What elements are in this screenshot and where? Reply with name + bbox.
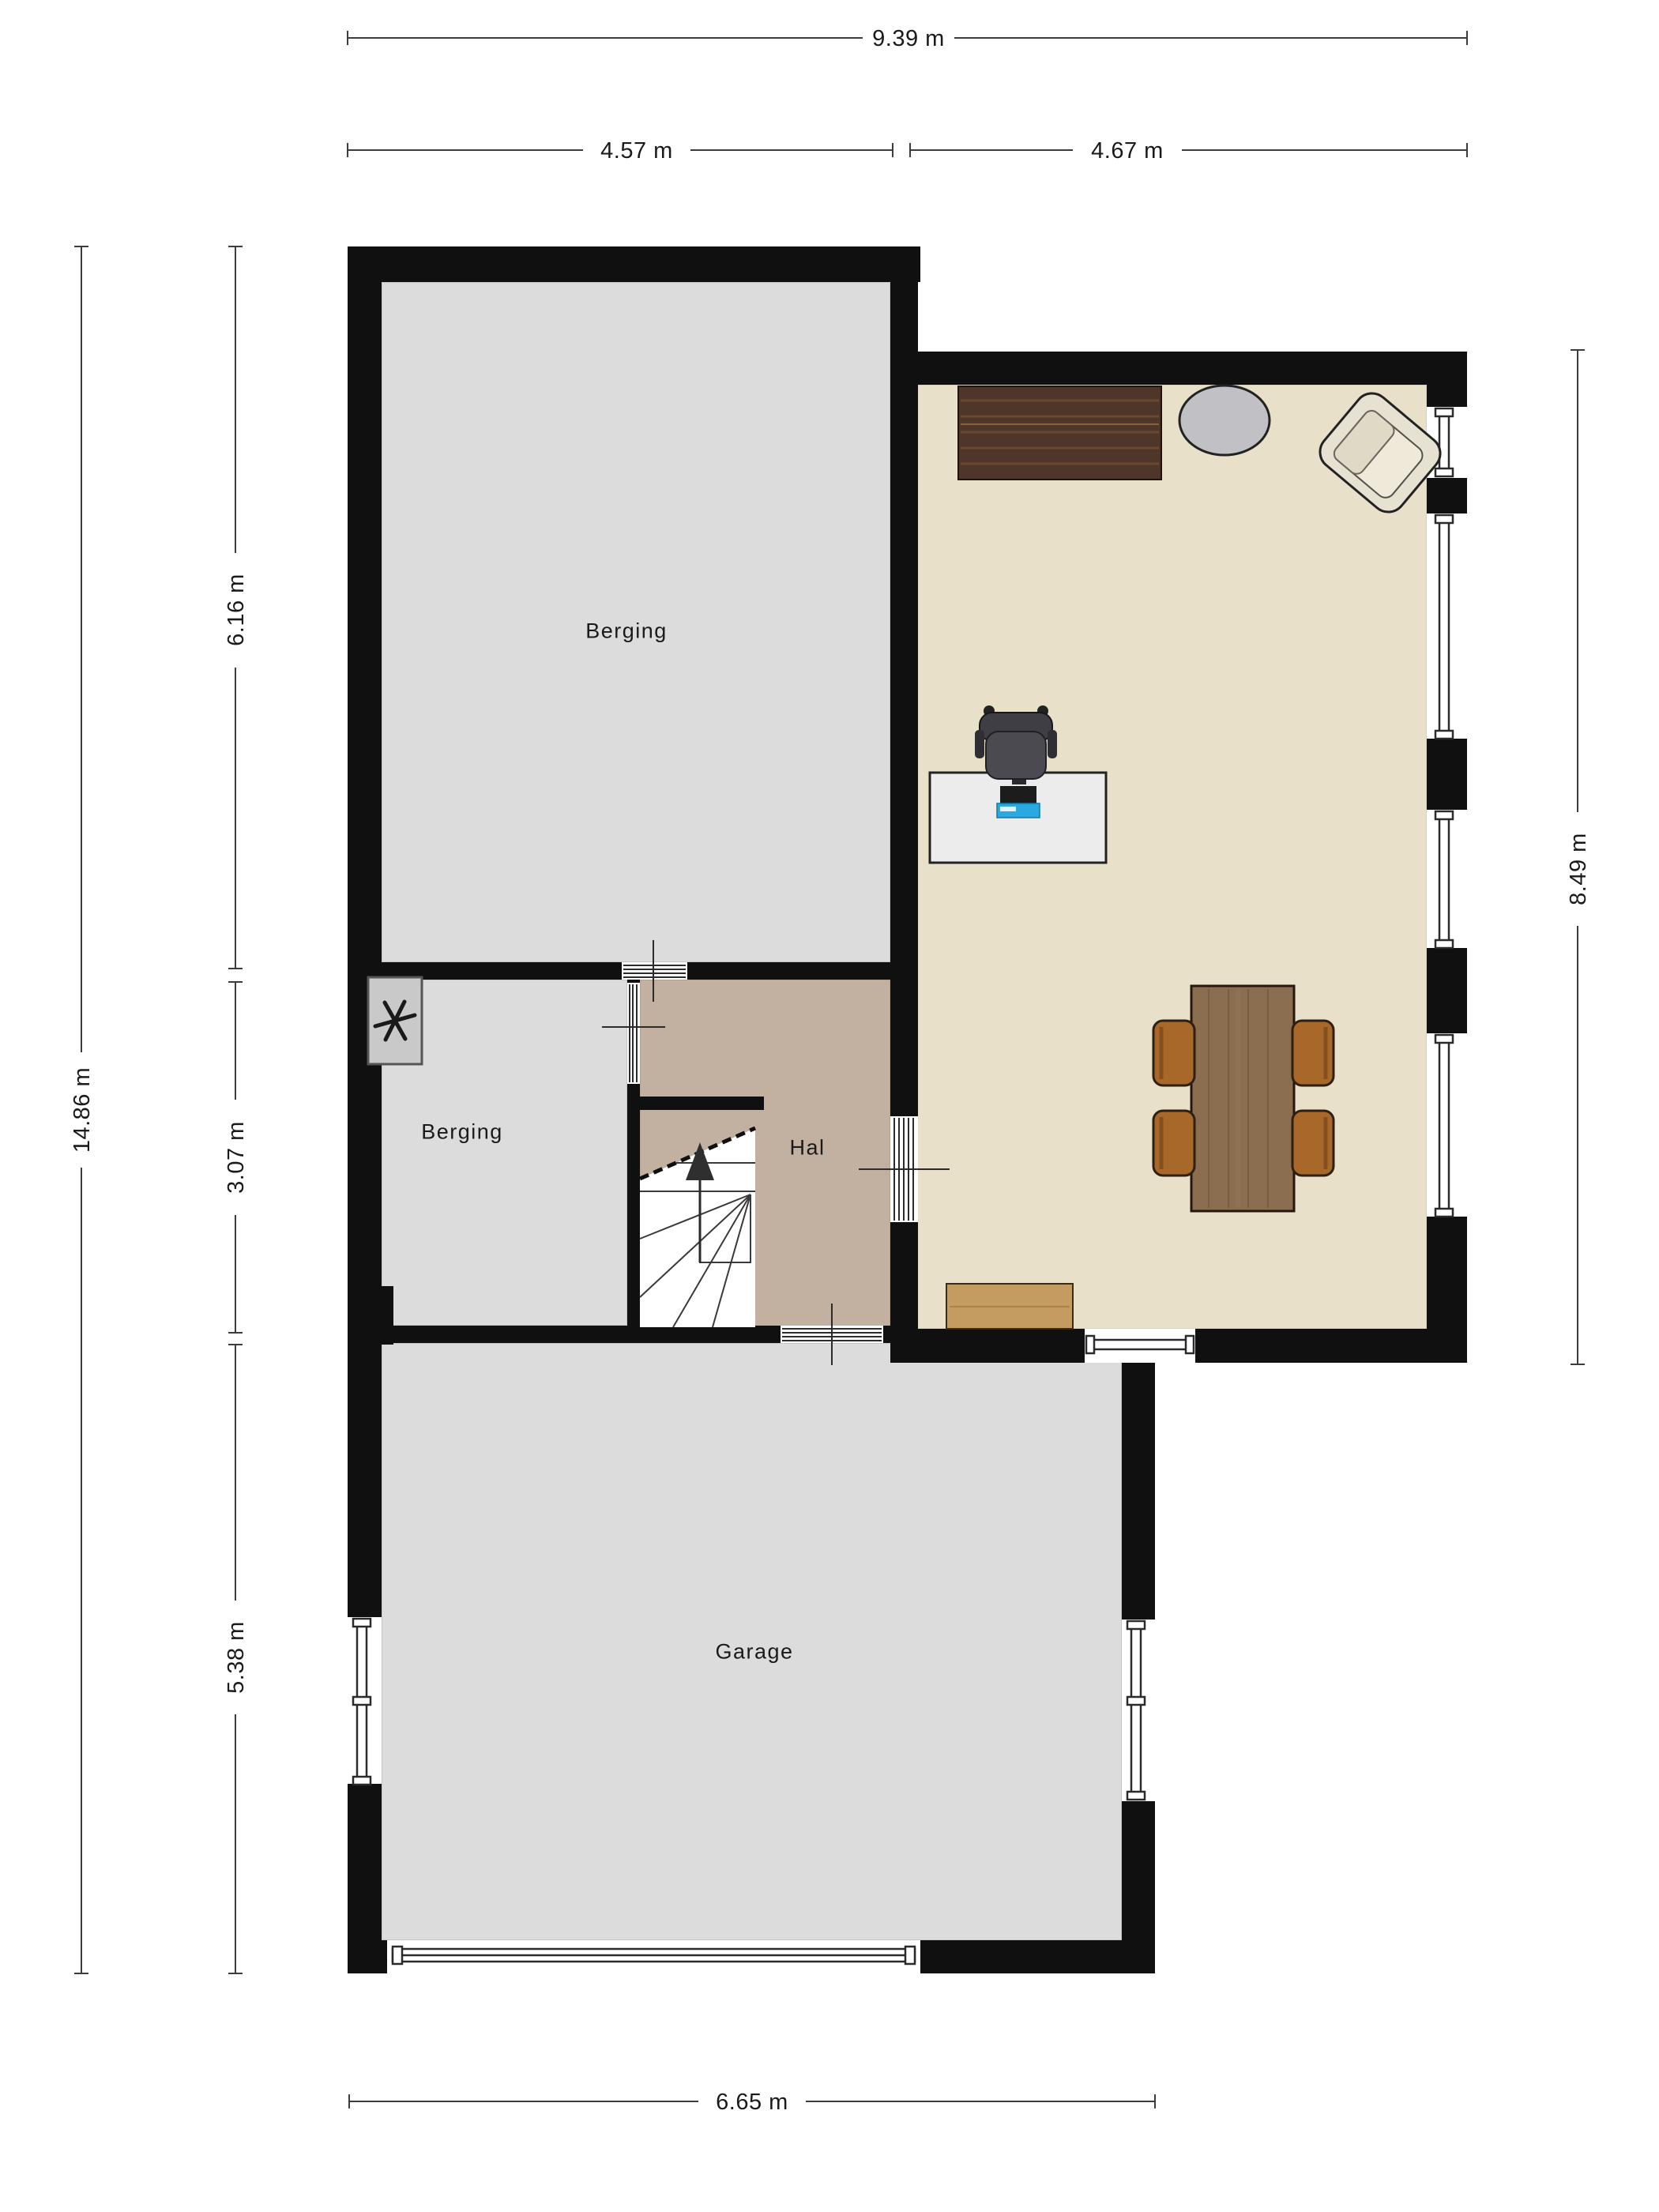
dim-label-top-total: 9.39 m (872, 26, 945, 51)
ventilation-unit (368, 977, 422, 1064)
wall-living-bottom-b (1195, 1329, 1467, 1363)
dim-label-left-bottom: 5.38 m (224, 1621, 249, 1694)
wall-smallberging-hal-a (627, 980, 640, 983)
dim-label-left-total: 14.86 m (70, 1067, 95, 1153)
wall-right-4 (1427, 948, 1467, 1033)
wall-garage-bottom-a (348, 1940, 387, 1973)
sideboard (958, 386, 1161, 480)
dim-label-left-middle: 3.07 m (224, 1121, 249, 1194)
desk (930, 773, 1106, 863)
dim-line-top-right (910, 143, 1467, 157)
floorplan-canvas: Berging Berging Hal Garage 9.39 m 4.57 m… (0, 0, 1659, 2212)
bench (946, 1284, 1073, 1329)
wall-right-1 (1427, 352, 1467, 407)
wall-right-3 (1427, 739, 1467, 810)
wall-living-top (916, 352, 1467, 385)
dim-label-top-left: 4.57 m (600, 138, 673, 164)
wall-berging-living-b (890, 1222, 918, 1343)
wall-garage-top-b (883, 1326, 890, 1343)
wall-right-2 (1427, 478, 1467, 513)
wall-stair-stub (640, 1097, 764, 1110)
wall-garage-top-a (348, 1326, 781, 1343)
wall-berging-living-a (890, 246, 918, 1116)
wall-garage-right-a (1122, 1343, 1155, 1619)
dim-label-right: 8.49 m (1566, 833, 1591, 905)
dim-label-top-right: 4.67 m (1091, 138, 1164, 164)
wall-berging-hal-b (687, 962, 890, 980)
dim-label-bottom: 6.65 m (716, 2090, 788, 2115)
wall-top (348, 246, 920, 282)
label-hal: Hal (789, 1135, 825, 1159)
dim-label-left-top: 6.16 m (224, 574, 249, 646)
wall-smallberging-hal-b (627, 1084, 640, 1326)
label-garage: Garage (715, 1639, 793, 1663)
wall-garage-bottom-b (920, 1940, 1155, 1973)
wall-living-bottom-a (890, 1329, 1085, 1363)
laptop-screen-detail (1000, 807, 1016, 811)
round-table (1179, 386, 1270, 455)
label-berging-large: Berging (585, 619, 668, 642)
office-chair (975, 705, 1057, 779)
floorplan-page: Berging Berging Hal Garage 9.39 m 4.57 m… (0, 0, 1659, 2212)
dining-table (1191, 986, 1294, 1211)
wall-left-lower-a (348, 1327, 382, 1617)
label-berging-small: Berging (421, 1119, 503, 1143)
keyboard (1000, 786, 1036, 803)
wall-left-upper (348, 246, 382, 1327)
